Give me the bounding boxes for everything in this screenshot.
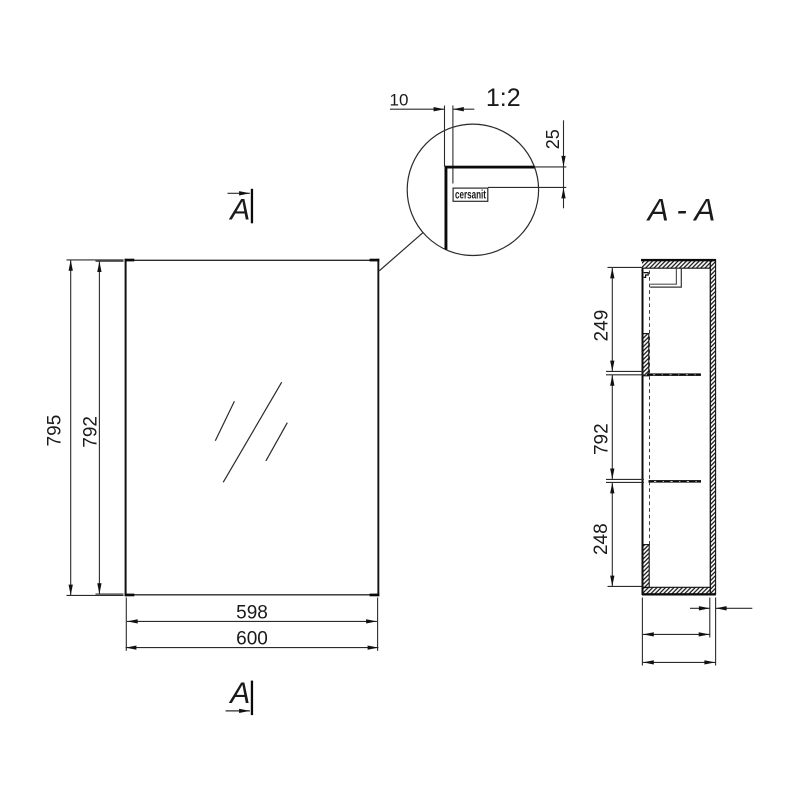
svg-text:10: 10 xyxy=(390,90,409,109)
svg-text:792: 792 xyxy=(591,423,612,455)
svg-text:cersanit: cersanit xyxy=(455,189,486,201)
svg-text:A: A xyxy=(228,193,250,226)
svg-text:1:2: 1:2 xyxy=(486,84,521,112)
svg-text:A: A xyxy=(228,677,250,710)
svg-text:795: 795 xyxy=(45,415,66,447)
svg-text:598: 598 xyxy=(236,603,268,624)
svg-text:25: 25 xyxy=(543,129,563,149)
svg-text:600: 600 xyxy=(236,629,268,650)
svg-text:792: 792 xyxy=(80,416,101,448)
svg-text:248: 248 xyxy=(591,523,612,555)
svg-text:249: 249 xyxy=(591,310,612,342)
svg-text:A - A: A - A xyxy=(646,191,716,227)
